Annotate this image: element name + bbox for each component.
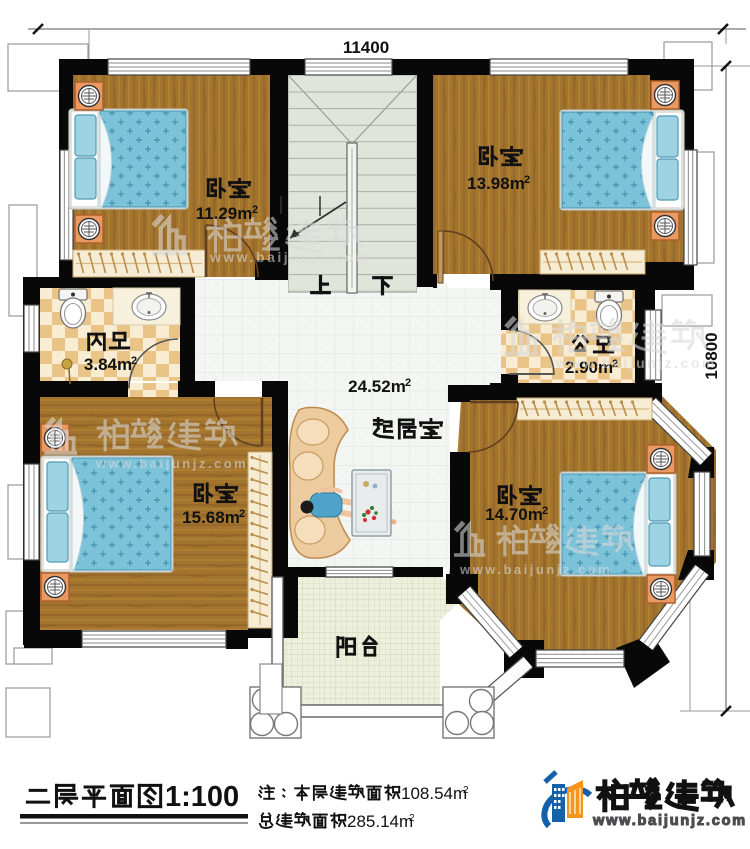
svg-text:15.68m: 15.68m bbox=[182, 508, 240, 527]
svg-text:2: 2 bbox=[405, 377, 411, 389]
svg-text:2: 2 bbox=[463, 785, 469, 796]
svg-text:11400: 11400 bbox=[343, 38, 389, 57]
svg-text:285.14m: 285.14m bbox=[347, 812, 413, 831]
svg-text:2: 2 bbox=[252, 204, 258, 216]
svg-text:11.29m: 11.29m bbox=[196, 204, 253, 223]
svg-text:24.52m: 24.52m bbox=[348, 377, 406, 396]
svg-text:www.baijunjz.com: www.baijunjz.com bbox=[95, 456, 248, 471]
svg-text:2: 2 bbox=[131, 355, 137, 367]
svg-text:www.baijunjz.com: www.baijunjz.com bbox=[459, 562, 612, 577]
svg-text:2: 2 bbox=[409, 813, 415, 824]
svg-text:3.84m: 3.84m bbox=[84, 355, 132, 374]
svg-text:2: 2 bbox=[542, 505, 548, 517]
svg-text:13.98m: 13.98m bbox=[467, 174, 525, 193]
svg-text:www.baijunjz.com: www.baijunjz.com bbox=[592, 813, 747, 829]
svg-text:2: 2 bbox=[524, 174, 530, 186]
svg-text:108.54m: 108.54m bbox=[401, 784, 467, 803]
svg-text:14.70m: 14.70m bbox=[485, 505, 543, 524]
svg-text:www.baijunjz.com: www.baijunjz.com bbox=[209, 249, 371, 265]
svg-text:1:100: 1:100 bbox=[165, 781, 239, 813]
svg-text:www.baijunjz.com: www.baijunjz.com bbox=[555, 355, 717, 371]
svg-text:2: 2 bbox=[239, 508, 245, 520]
